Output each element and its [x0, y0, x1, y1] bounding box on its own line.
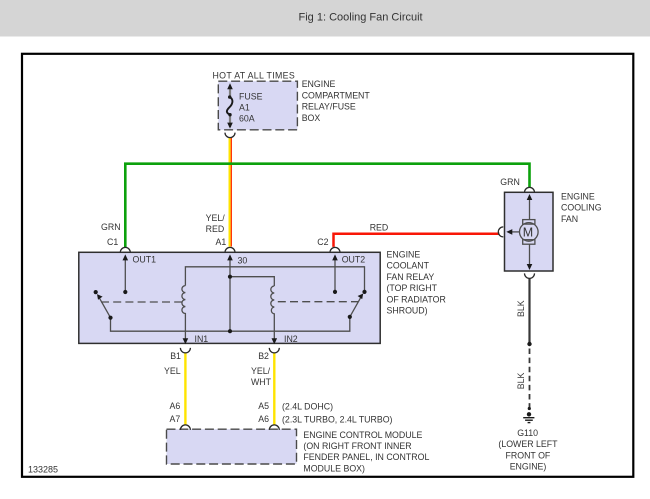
svg-text:RED: RED: [370, 222, 389, 232]
svg-text:133285: 133285: [28, 465, 58, 475]
svg-text:RED: RED: [206, 224, 225, 234]
svg-text:GRN: GRN: [500, 177, 520, 187]
svg-text:YEL: YEL: [164, 366, 181, 376]
svg-text:A6: A6: [170, 401, 181, 411]
svg-text:COOLANT: COOLANT: [387, 261, 430, 271]
svg-text:OUT2: OUT2: [342, 254, 366, 264]
svg-text:M: M: [523, 225, 533, 239]
svg-text:ENGINE: ENGINE: [302, 79, 336, 89]
svg-text:HOT AT ALL TIMES: HOT AT ALL TIMES: [213, 71, 296, 81]
svg-text:FAN: FAN: [561, 214, 578, 224]
svg-text:SHROUD): SHROUD): [387, 306, 428, 316]
svg-text:A1: A1: [216, 237, 227, 247]
svg-text:60A: 60A: [239, 114, 255, 124]
svg-text:A5: A5: [258, 401, 269, 411]
svg-text:(ON RIGHT FRONT INNER: (ON RIGHT FRONT INNER: [303, 441, 411, 451]
svg-text:A1: A1: [239, 103, 250, 113]
svg-text:COMPARTMENT: COMPARTMENT: [302, 90, 371, 100]
svg-text:RELAY/FUSE: RELAY/FUSE: [302, 102, 356, 112]
svg-text:(2.4L DOHC): (2.4L DOHC): [282, 402, 333, 412]
svg-text:(LOWER LEFT: (LOWER LEFT: [498, 439, 558, 449]
svg-text:GRN: GRN: [101, 222, 121, 232]
svg-text:BLK: BLK: [516, 300, 526, 317]
svg-text:MODULE BOX): MODULE BOX): [303, 463, 365, 473]
svg-text:FENDER PANEL, IN CONTROL: FENDER PANEL, IN CONTROL: [303, 452, 429, 462]
svg-text:FAN RELAY: FAN RELAY: [387, 272, 435, 282]
svg-text:YEL/: YEL/: [251, 366, 271, 376]
svg-text:30: 30: [238, 255, 248, 265]
svg-text:Fig 1: Cooling Fan Circuit: Fig 1: Cooling Fan Circuit: [299, 12, 423, 24]
svg-text:ENGINE): ENGINE): [510, 462, 547, 472]
svg-text:ENGINE: ENGINE: [387, 250, 421, 260]
svg-text:BOX: BOX: [302, 113, 321, 123]
svg-text:OF RADIATOR: OF RADIATOR: [387, 294, 446, 304]
svg-text:FRONT OF: FRONT OF: [506, 450, 551, 460]
svg-text:YEL/: YEL/: [206, 213, 226, 223]
svg-text:B1: B1: [170, 351, 181, 361]
svg-text:A6: A6: [258, 414, 269, 424]
svg-text:BLK: BLK: [516, 373, 526, 390]
svg-text:ENGINE CONTROL MODULE: ENGINE CONTROL MODULE: [303, 430, 422, 440]
svg-text:C1: C1: [107, 237, 118, 247]
svg-text:OUT1: OUT1: [133, 254, 157, 264]
svg-text:FUSE: FUSE: [239, 91, 263, 101]
svg-text:WHT: WHT: [251, 377, 272, 387]
svg-text:A7: A7: [170, 414, 181, 424]
svg-text:COOLING: COOLING: [561, 203, 602, 213]
svg-text:(TOP RIGHT: (TOP RIGHT: [387, 283, 438, 293]
svg-text:IN2: IN2: [284, 334, 298, 344]
svg-text:(2.3L TURBO, 2.4L TURBO): (2.3L TURBO, 2.4L TURBO): [282, 414, 393, 424]
svg-text:G110: G110: [517, 428, 538, 438]
svg-text:ENGINE: ENGINE: [561, 192, 595, 202]
svg-text:C2: C2: [317, 237, 328, 247]
svg-text:B2: B2: [258, 351, 269, 361]
svg-text:IN1: IN1: [195, 334, 209, 344]
